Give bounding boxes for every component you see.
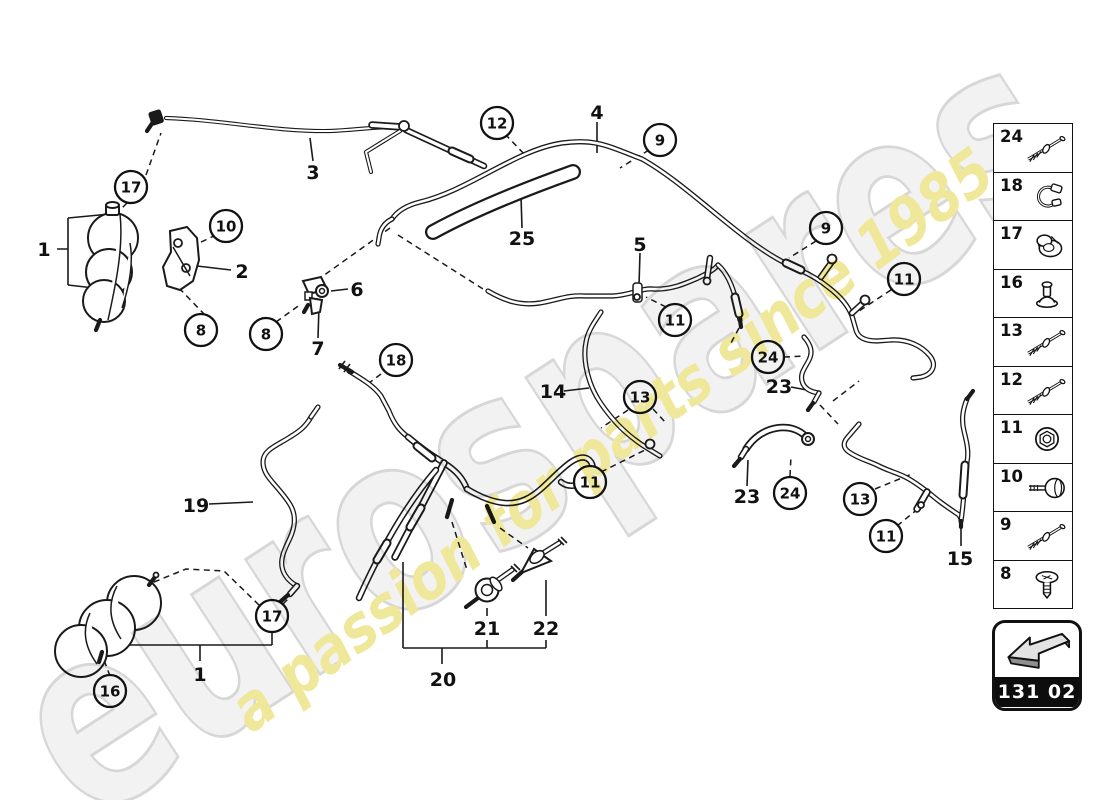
legend-item-number: 8 [1000, 564, 1011, 583]
legend-item-17[interactable]: 17 [994, 221, 1072, 270]
part-label-1[interactable]: 1 [37, 239, 50, 261]
part-group-code: 131 02 [995, 677, 1079, 707]
svg-text:11: 11 [876, 528, 897, 546]
part-label-3[interactable]: 3 [306, 162, 319, 184]
long-screw-icon [1023, 129, 1071, 167]
legend-item-number: 9 [1000, 515, 1011, 534]
callout-9[interactable]: 9 [644, 124, 676, 156]
legend-item-18[interactable]: 18 [994, 173, 1072, 222]
part-label-20[interactable]: 20 [430, 669, 456, 691]
part-group-box[interactable]: 131 02 [992, 620, 1082, 711]
round-nut-icon [1023, 420, 1071, 458]
part-label-6[interactable]: 6 [350, 279, 363, 301]
svg-text:10: 10 [216, 218, 237, 236]
svg-text:9: 9 [655, 132, 665, 150]
legend-item-24[interactable]: 24 [994, 124, 1072, 173]
callout-11[interactable]: 11 [870, 520, 902, 552]
parts-diagram-page: 1710881299111118132411241311171612345671… [0, 0, 1100, 800]
watermark: eurospares a passion for parts since 198… [0, 0, 1100, 800]
legend-item-9[interactable]: 9 [994, 512, 1072, 561]
svg-text:12: 12 [487, 115, 508, 133]
reservoir-bracket [163, 227, 199, 290]
legend-item-16[interactable]: 16 [994, 270, 1072, 319]
legend-item-13[interactable]: 13 [994, 318, 1072, 367]
svg-text:13: 13 [850, 491, 871, 509]
legend-item-number: 10 [1000, 467, 1023, 486]
legend-item-number: 17 [1000, 224, 1023, 243]
long-screw-icon [1023, 323, 1071, 361]
pipe-clip-icon [1023, 178, 1071, 216]
long-screw-icon [1023, 372, 1071, 410]
dome-bolt-icon [1023, 469, 1071, 507]
legend-item-number: 24 [1000, 127, 1023, 146]
callout-8[interactable]: 8 [185, 314, 217, 346]
legend-item-number: 13 [1000, 321, 1023, 340]
legend-item-number: 11 [1000, 418, 1023, 437]
svg-text:24: 24 [780, 485, 801, 503]
svg-text:8: 8 [196, 322, 206, 340]
callout-13[interactable]: 13 [844, 483, 876, 515]
legend-item-10[interactable]: 10 [994, 464, 1072, 513]
legend-item-number: 12 [1000, 370, 1023, 389]
svg-text:17: 17 [121, 179, 142, 197]
dome-screw-icon [1023, 566, 1071, 604]
stud-icon [1023, 275, 1071, 313]
diagram-canvas: 1710881299111118132411241311171612345671… [0, 0, 1100, 800]
svg-text:8: 8 [261, 326, 271, 344]
callout-24[interactable]: 24 [774, 477, 806, 509]
legend-item-number: 18 [1000, 176, 1023, 195]
grommet-icon [1023, 226, 1071, 264]
part-label-23[interactable]: 23 [734, 486, 760, 508]
part-label-22[interactable]: 22 [533, 618, 559, 640]
changeover-valve [303, 277, 328, 300]
legend-item-12[interactable]: 12 [994, 367, 1072, 416]
part-label-25[interactable]: 25 [509, 228, 535, 250]
callout-12[interactable]: 12 [481, 107, 513, 139]
part-label-15[interactable]: 15 [947, 548, 973, 570]
part-label-7[interactable]: 7 [311, 338, 324, 360]
vacuum-reservoir-top [83, 202, 138, 330]
long-screw-icon [1023, 517, 1071, 555]
part-label-4[interactable]: 4 [590, 102, 603, 124]
legend-item-8[interactable]: 8 [994, 561, 1072, 609]
watermark-brand-text: eurospares [0, 0, 1100, 800]
callout-8[interactable]: 8 [250, 318, 282, 350]
diagram-arrow-icon [997, 625, 1077, 675]
part-label-2[interactable]: 2 [235, 261, 248, 283]
legend-item-number: 16 [1000, 273, 1023, 292]
legend-item-11[interactable]: 11 [994, 415, 1072, 464]
fasteners-legend: 24 18 17 16 13 12 11 10 9 8 [993, 123, 1073, 609]
callout-10[interactable]: 10 [210, 210, 242, 242]
callout-17[interactable]: 17 [115, 171, 147, 203]
